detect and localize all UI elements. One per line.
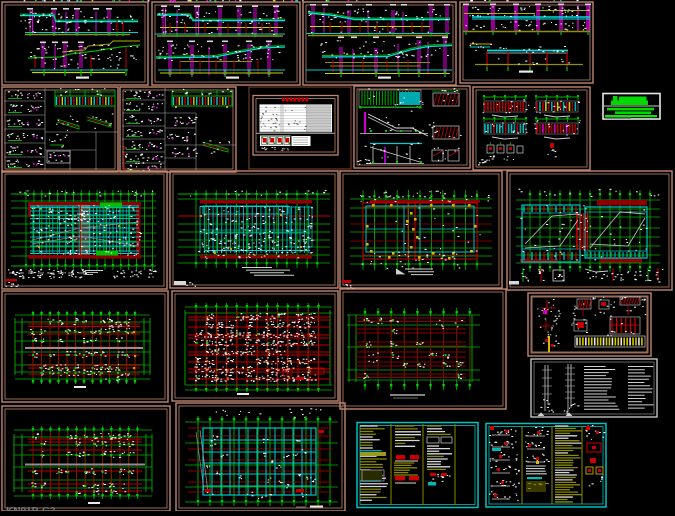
svg-text:KN01B-G3: KN01B-G3 — [6, 506, 56, 511]
